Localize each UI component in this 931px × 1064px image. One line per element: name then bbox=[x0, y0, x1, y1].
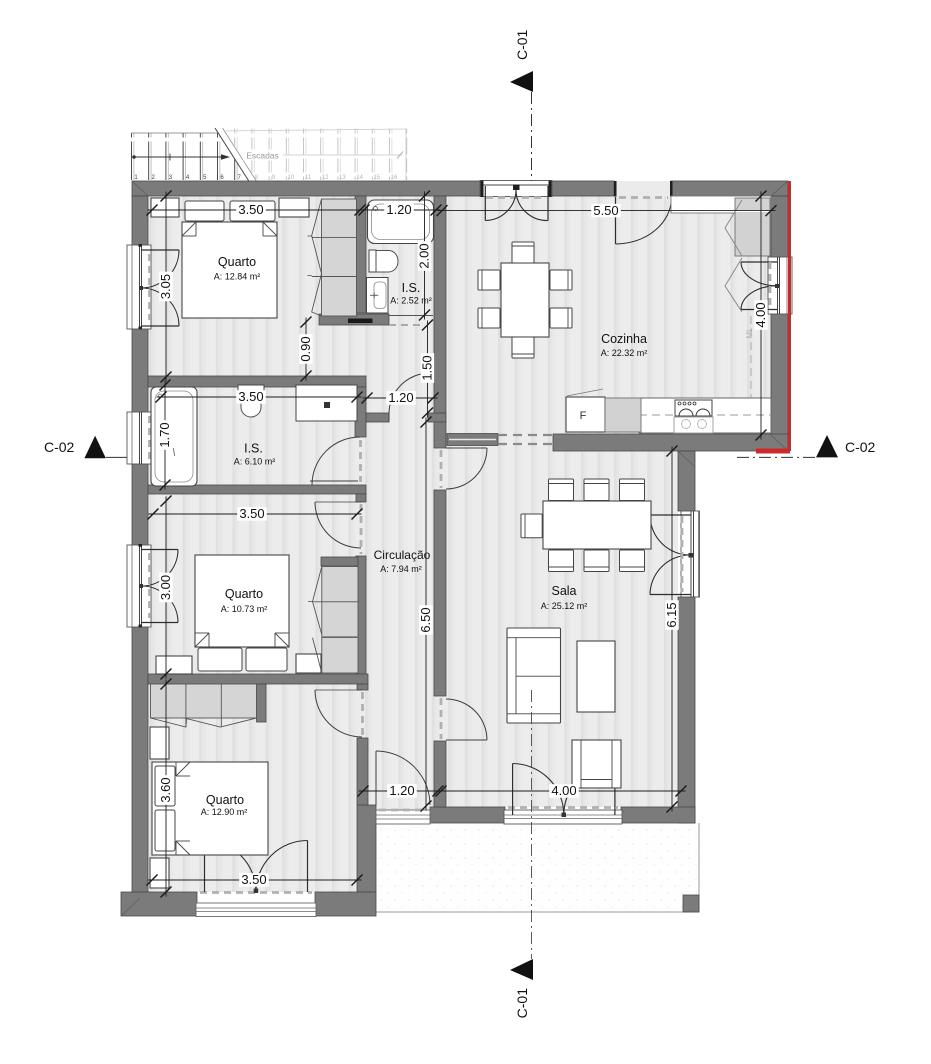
svg-text:Cozinha: Cozinha bbox=[601, 332, 647, 346]
svg-text:15: 15 bbox=[373, 175, 380, 181]
svg-text:6.50: 6.50 bbox=[418, 607, 433, 632]
svg-text:I.S.: I.S. bbox=[402, 281, 421, 295]
svg-text:4.00: 4.00 bbox=[753, 302, 768, 327]
svg-text:F: F bbox=[580, 410, 587, 422]
svg-text:C-01: C-01 bbox=[514, 29, 530, 60]
svg-text:5.50: 5.50 bbox=[593, 203, 618, 218]
svg-text:Circulação: Circulação bbox=[374, 548, 431, 562]
svg-text:0.90: 0.90 bbox=[298, 336, 313, 361]
svg-text:3.50: 3.50 bbox=[239, 506, 264, 521]
svg-text:1.50: 1.50 bbox=[420, 355, 435, 380]
svg-text:3.60: 3.60 bbox=[158, 777, 173, 802]
svg-text:3.00: 3.00 bbox=[158, 575, 173, 600]
svg-text:1.20: 1.20 bbox=[386, 202, 411, 217]
svg-text:A: 2.52 m²: A: 2.52 m² bbox=[390, 296, 432, 306]
svg-text:13: 13 bbox=[339, 175, 346, 181]
svg-text:A: 12.84 m²: A: 12.84 m² bbox=[214, 272, 261, 282]
svg-text:A: 22.32 m²: A: 22.32 m² bbox=[601, 348, 648, 358]
svg-text:11: 11 bbox=[305, 175, 312, 181]
svg-text:C-02: C-02 bbox=[44, 439, 75, 455]
svg-text:14: 14 bbox=[356, 175, 363, 181]
svg-text:3.50: 3.50 bbox=[238, 389, 263, 404]
svg-text:A: 6.10 m²: A: 6.10 m² bbox=[234, 457, 276, 467]
svg-text:Escadas: Escadas bbox=[246, 151, 279, 161]
svg-text:C-02: C-02 bbox=[845, 439, 876, 455]
svg-text:1.20: 1.20 bbox=[388, 390, 413, 405]
svg-text:12: 12 bbox=[322, 175, 329, 181]
svg-text:A: 25.12 m²: A: 25.12 m² bbox=[541, 601, 588, 611]
svg-text:A: 7.94 m²: A: 7.94 m² bbox=[380, 564, 422, 574]
svg-text:2.00: 2.00 bbox=[417, 243, 432, 268]
svg-text:A: 12.90 m²: A: 12.90 m² bbox=[201, 807, 248, 817]
svg-text:Quarto: Quarto bbox=[225, 587, 263, 601]
svg-text:C-01: C-01 bbox=[514, 988, 530, 1019]
svg-text:A: 10.73 m²: A: 10.73 m² bbox=[221, 604, 268, 614]
svg-text:1.20: 1.20 bbox=[389, 783, 414, 798]
svg-text:I.S.: I.S. bbox=[244, 442, 263, 456]
svg-text:16: 16 bbox=[391, 175, 398, 181]
svg-text:10: 10 bbox=[287, 175, 294, 181]
svg-text:3.05: 3.05 bbox=[158, 274, 173, 299]
svg-text:6.15: 6.15 bbox=[664, 602, 679, 627]
svg-text:3.50: 3.50 bbox=[241, 872, 266, 887]
svg-text:Quarto: Quarto bbox=[206, 793, 244, 807]
svg-text:1.70: 1.70 bbox=[157, 422, 172, 447]
svg-text:Quarto: Quarto bbox=[218, 255, 256, 269]
svg-text:4.00: 4.00 bbox=[551, 783, 576, 798]
svg-text:3.50: 3.50 bbox=[238, 202, 263, 217]
svg-text:Sala: Sala bbox=[551, 584, 576, 598]
